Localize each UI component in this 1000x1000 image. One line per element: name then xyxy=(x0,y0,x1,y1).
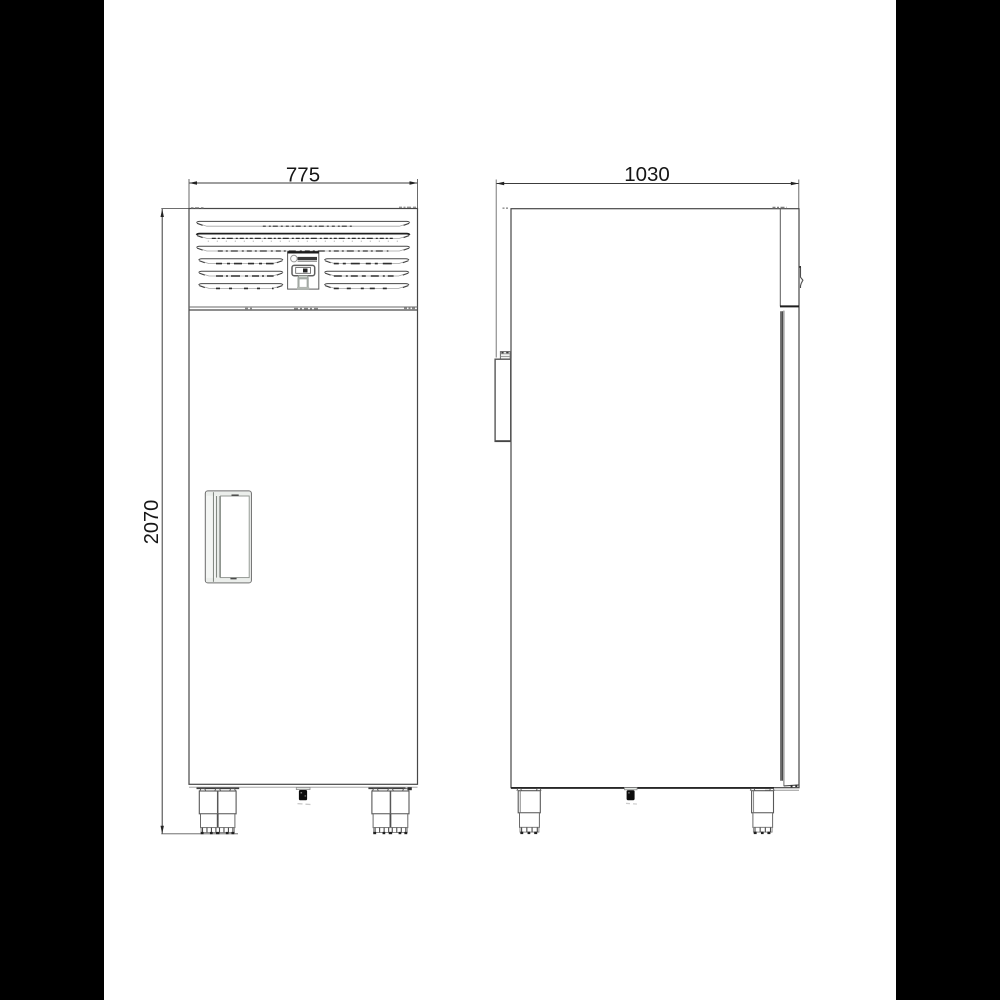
svg-text:2070: 2070 xyxy=(141,500,163,545)
svg-text:1030: 1030 xyxy=(624,163,670,186)
